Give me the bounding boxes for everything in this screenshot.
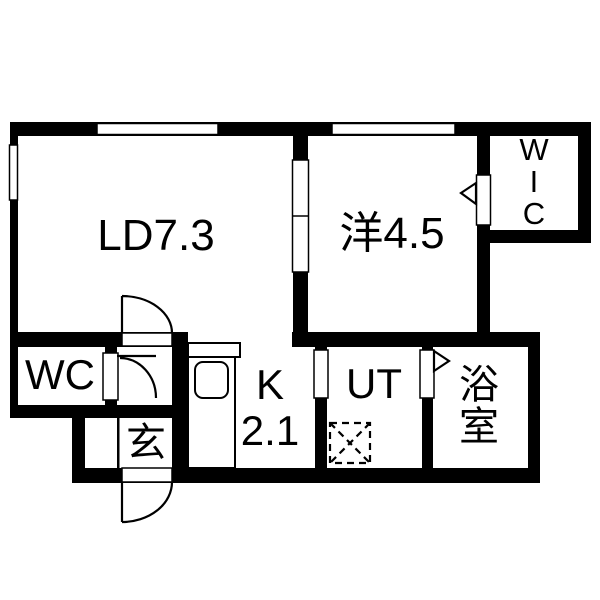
living-dining-label: LD7.3 bbox=[97, 214, 214, 258]
floor-plan: LD7.3 洋4.5 W I C WC 玄 K 2.1 UT 浴 室 bbox=[0, 0, 600, 600]
bath-char-1: 浴 bbox=[459, 364, 499, 406]
outer-wall-wic-right bbox=[578, 122, 591, 243]
utility-door-opening bbox=[314, 350, 328, 398]
outer-wall-bathroom-right bbox=[528, 332, 540, 483]
floor-plan-drawing bbox=[0, 0, 600, 600]
kitchen-sink-icon bbox=[195, 362, 228, 398]
washing-machine-space-icon bbox=[330, 423, 370, 463]
living-door-swing-icon bbox=[122, 296, 172, 333]
walk-in-closet-label: W I C bbox=[519, 134, 548, 230]
bath-char-2: 室 bbox=[459, 406, 499, 448]
entrance-label: 玄 bbox=[126, 423, 166, 463]
wall-toilet-bottom bbox=[10, 405, 188, 418]
wall-wic-bottom bbox=[477, 230, 591, 243]
kitchen-counter-back bbox=[188, 343, 240, 357]
toilet-label: WC bbox=[25, 354, 95, 396]
entrance-door-swing-icon bbox=[122, 482, 172, 522]
window-living-top-icon bbox=[97, 124, 218, 135]
kitchen-size: 2.1 bbox=[241, 408, 299, 454]
window-living-left-icon bbox=[10, 145, 18, 200]
entrance-door-opening bbox=[122, 468, 172, 482]
kitchen-label: K 2.1 bbox=[241, 362, 299, 454]
bathroom-label: 浴 室 bbox=[459, 364, 499, 448]
wic-direction-arrow-icon bbox=[461, 183, 476, 204]
toilet-door-swing-icon bbox=[117, 356, 156, 398]
utility-label: UT bbox=[346, 363, 402, 405]
kitchen-letter: K bbox=[256, 362, 284, 408]
wic-door-panel-icon bbox=[477, 175, 491, 225]
wic-char-c: C bbox=[523, 198, 545, 230]
wic-char-w: W bbox=[519, 134, 548, 166]
window-western-top-icon bbox=[332, 124, 455, 135]
bathroom-direction-arrow-icon bbox=[434, 351, 449, 371]
toilet-door-opening bbox=[103, 353, 118, 400]
wall-mid-right bbox=[292, 332, 540, 347]
wic-char-i: I bbox=[530, 166, 539, 198]
entrance-step-line bbox=[117, 418, 120, 468]
bathroom-door-opening bbox=[420, 350, 434, 398]
living-door-opening bbox=[122, 333, 172, 346]
western-room-label: 洋4.5 bbox=[339, 212, 444, 256]
